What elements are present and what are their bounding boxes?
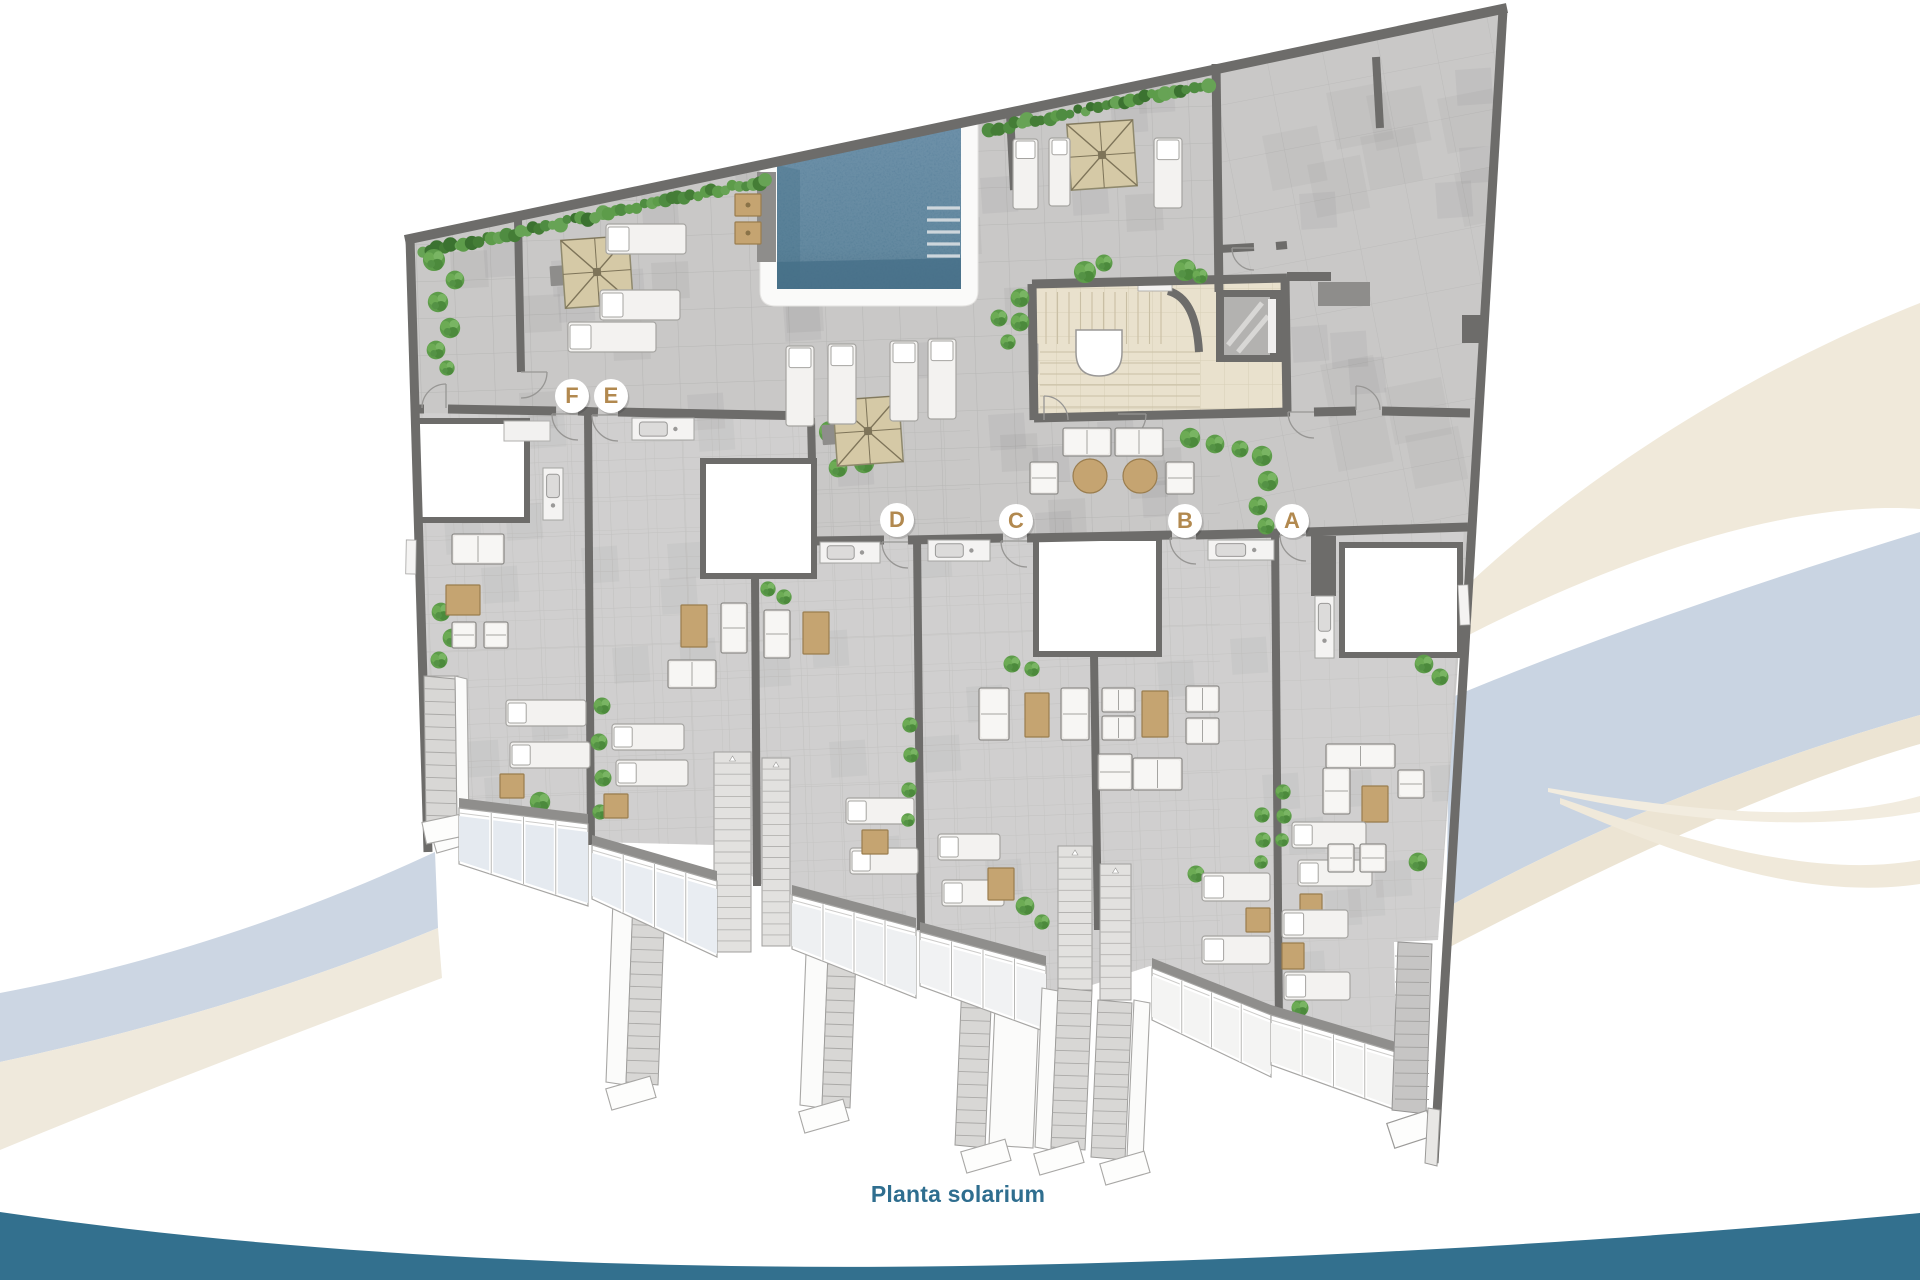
svg-text:F: F xyxy=(565,383,578,408)
svg-text:E: E xyxy=(604,383,619,408)
svg-text:Planta solarium: Planta solarium xyxy=(871,1181,1045,1207)
svg-text:B: B xyxy=(1177,508,1193,533)
svg-text:A: A xyxy=(1284,508,1300,533)
svg-text:C: C xyxy=(1008,508,1024,533)
svg-text:D: D xyxy=(889,507,905,532)
